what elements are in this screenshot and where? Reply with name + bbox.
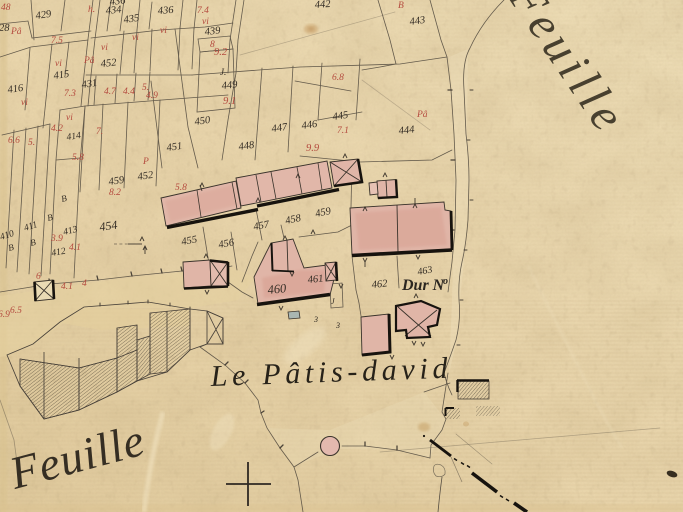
svg-text:9.1: 9.1 xyxy=(223,96,236,107)
svg-text:6.5: 6.5 xyxy=(10,306,22,316)
svg-text:5.8: 5.8 xyxy=(175,183,187,193)
svg-text:B: B xyxy=(398,1,404,11)
svg-text:8.2: 8.2 xyxy=(109,188,121,198)
svg-text:4.1: 4.1 xyxy=(61,282,73,292)
svg-text:429: 429 xyxy=(35,9,53,22)
svg-text:451: 451 xyxy=(166,141,183,154)
svg-text:416: 416 xyxy=(7,83,25,96)
svg-text:3: 3 xyxy=(335,321,340,330)
svg-text:vi: vi xyxy=(202,17,209,27)
svg-text:454: 454 xyxy=(98,218,118,234)
svg-text:460: 460 xyxy=(267,281,288,297)
svg-text:o: o xyxy=(443,276,448,287)
svg-text:435: 435 xyxy=(123,13,140,26)
svg-text:448: 448 xyxy=(238,140,256,153)
svg-text:6.8: 6.8 xyxy=(332,73,344,83)
svg-text:vi: vi xyxy=(21,98,28,108)
svg-text:6.6: 6.6 xyxy=(8,136,20,146)
svg-text:431: 431 xyxy=(81,78,98,91)
svg-text:9.9: 9.9 xyxy=(306,143,320,154)
svg-text:h.: h. xyxy=(88,5,95,15)
svg-text:7.1: 7.1 xyxy=(337,126,349,136)
svg-text:415: 415 xyxy=(53,69,70,82)
svg-text:4.4: 4.4 xyxy=(123,87,135,97)
svg-text:4.1: 4.1 xyxy=(69,243,81,253)
svg-text:vi: vi xyxy=(132,33,139,43)
svg-text:4.9: 4.9 xyxy=(146,91,158,101)
svg-text:442: 442 xyxy=(314,0,331,11)
svg-text:446: 446 xyxy=(301,119,319,132)
svg-text:Dur N: Dur N xyxy=(401,277,446,294)
svg-text:28: 28 xyxy=(0,23,10,34)
svg-text:Pâ: Pâ xyxy=(83,56,95,66)
svg-text:414: 414 xyxy=(66,131,82,143)
svg-text:445: 445 xyxy=(332,110,349,123)
svg-text:vi: vi xyxy=(55,59,62,69)
svg-text:4: 4 xyxy=(82,279,87,289)
svg-text:7.3: 7.3 xyxy=(64,89,76,99)
svg-text:449: 449 xyxy=(221,79,239,92)
svg-text:434: 434 xyxy=(105,4,123,17)
svg-text:443: 443 xyxy=(409,15,426,28)
svg-text:6: 6 xyxy=(36,272,41,282)
svg-text:3: 3 xyxy=(313,315,318,324)
svg-text:462: 462 xyxy=(371,278,389,291)
svg-text:459: 459 xyxy=(108,175,126,188)
svg-text:vi: vi xyxy=(160,26,167,36)
svg-text:7.: 7. xyxy=(96,127,103,137)
svg-text:4.2: 4.2 xyxy=(51,124,63,134)
svg-text:6.9: 6.9 xyxy=(0,310,10,320)
svg-text:4.7: 4.7 xyxy=(104,87,117,97)
svg-text:J: J xyxy=(331,297,335,306)
svg-text:J.: J. xyxy=(220,67,226,77)
svg-text:436: 436 xyxy=(157,5,174,17)
svg-text:5.8: 5.8 xyxy=(72,153,84,163)
svg-text:444: 444 xyxy=(398,124,416,137)
svg-text:439: 439 xyxy=(204,25,222,38)
svg-text:461: 461 xyxy=(307,273,324,286)
svg-text:Pâ: Pâ xyxy=(10,27,22,37)
svg-text:3.9: 3.9 xyxy=(50,234,63,244)
svg-text:450: 450 xyxy=(194,115,212,128)
svg-text:7.5: 7.5 xyxy=(51,36,63,46)
svg-text:P: P xyxy=(142,157,149,167)
svg-text:452: 452 xyxy=(137,170,155,183)
svg-text:48: 48 xyxy=(1,3,11,13)
svg-text:Pâ: Pâ xyxy=(416,110,428,120)
svg-text:447: 447 xyxy=(271,122,289,135)
svg-text:452: 452 xyxy=(100,57,118,70)
svg-text:7.4: 7.4 xyxy=(197,6,209,16)
svg-text:vi: vi xyxy=(66,113,73,123)
svg-text:9.2: 9.2 xyxy=(214,47,228,58)
svg-text:vi: vi xyxy=(101,43,108,53)
svg-text:5.: 5. xyxy=(28,138,35,148)
